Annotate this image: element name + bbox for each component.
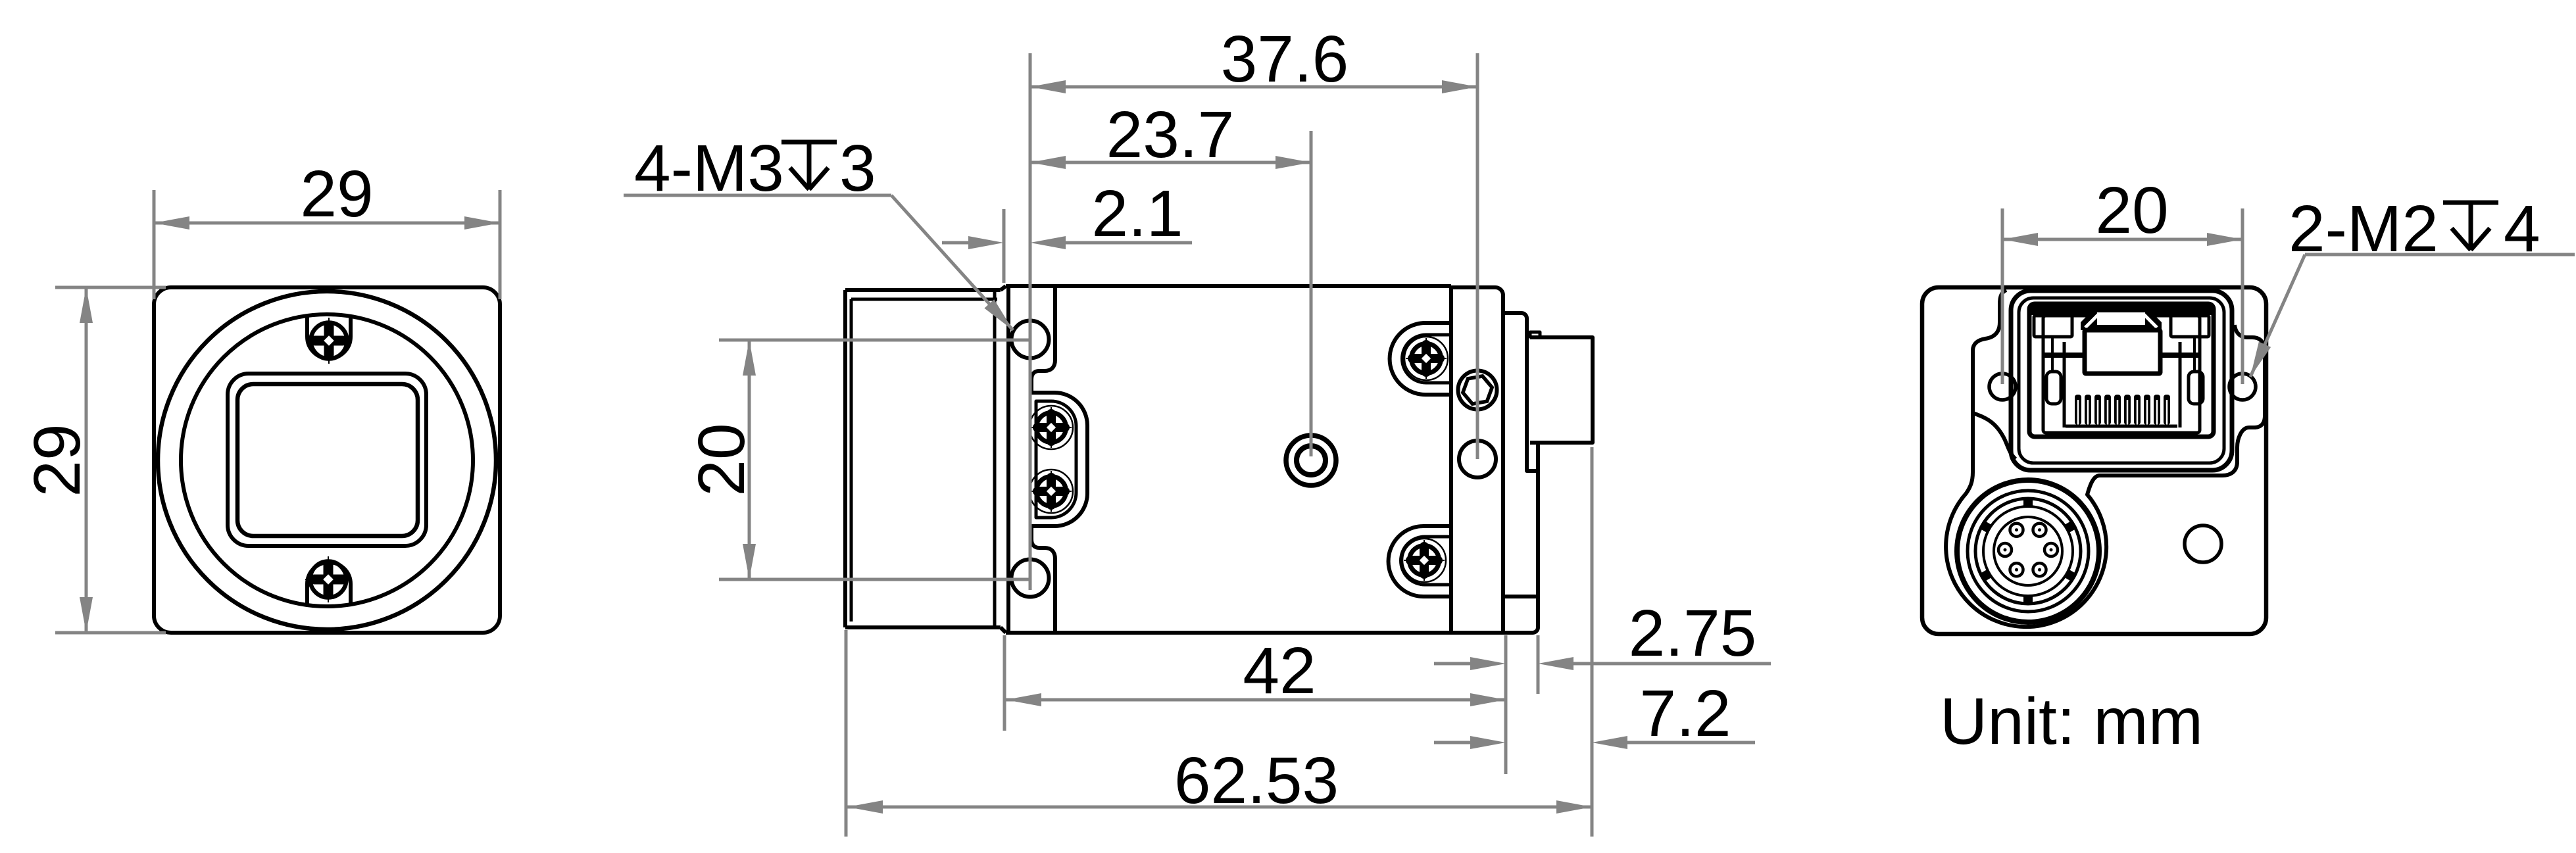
svg-text:20: 20: [2095, 174, 2168, 247]
svg-text:2.75: 2.75: [1629, 597, 1757, 670]
svg-text:29: 29: [300, 157, 373, 231]
svg-text:20: 20: [685, 423, 758, 496]
svg-text:23.7: 23.7: [1106, 98, 1235, 172]
svg-text:42: 42: [1243, 634, 1316, 708]
svg-text:37.6: 37.6: [1221, 22, 1349, 96]
svg-text:29: 29: [20, 424, 94, 497]
svg-text:7.2: 7.2: [1639, 677, 1731, 750]
svg-text:Unit: mm: Unit: mm: [1940, 685, 2203, 758]
svg-text:62.53: 62.53: [1174, 744, 1339, 817]
svg-text:2.1: 2.1: [1091, 177, 1183, 251]
